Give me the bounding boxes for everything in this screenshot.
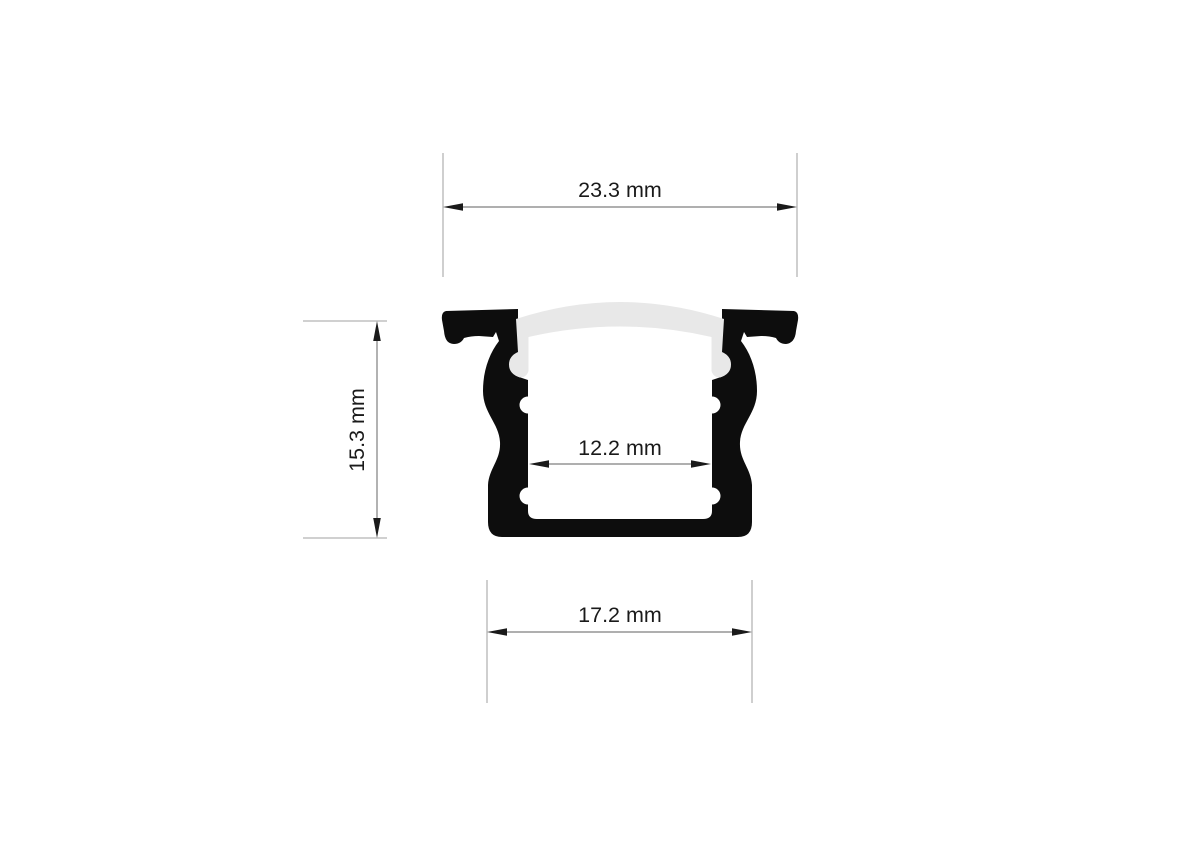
groove-recess-top-left — [520, 397, 537, 414]
groove-recess-bottom-left — [520, 488, 537, 505]
arrowhead-up-icon — [373, 321, 381, 341]
dimension-label-overall-width: 23.3 mm — [578, 178, 662, 202]
arrowhead-left-icon — [487, 628, 507, 636]
arrowhead-right-icon — [732, 628, 752, 636]
arrowhead-left-icon — [529, 460, 549, 468]
arrowhead-down-icon — [373, 518, 381, 538]
dimension-height: 15.3 mm — [303, 321, 387, 538]
arrowhead-right-icon — [691, 460, 711, 468]
profile-body-shape — [442, 309, 798, 537]
groove-recess-bottom-right — [704, 488, 721, 505]
dimension-base-width: 17.2 mm — [487, 580, 752, 703]
groove-recess-top-right — [704, 397, 721, 414]
dimension-label-height: 15.3 mm — [345, 388, 369, 472]
dimension-label-base-width: 17.2 mm — [578, 603, 662, 627]
arrowhead-left-icon — [443, 203, 463, 211]
diffuser-cover-shape — [509, 302, 731, 378]
dimension-label-inner-width: 12.2 mm — [578, 436, 662, 460]
drawing-canvas: 23.3 mm 15.3 mm 12.2 mm 17.2 mm — [0, 0, 1191, 842]
profile-technical-drawing: 23.3 mm 15.3 mm 12.2 mm 17.2 mm — [0, 0, 1191, 842]
dimension-overall-width: 23.3 mm — [443, 153, 797, 277]
dimension-inner-width: 12.2 mm — [529, 436, 711, 468]
arrowhead-right-icon — [777, 203, 797, 211]
